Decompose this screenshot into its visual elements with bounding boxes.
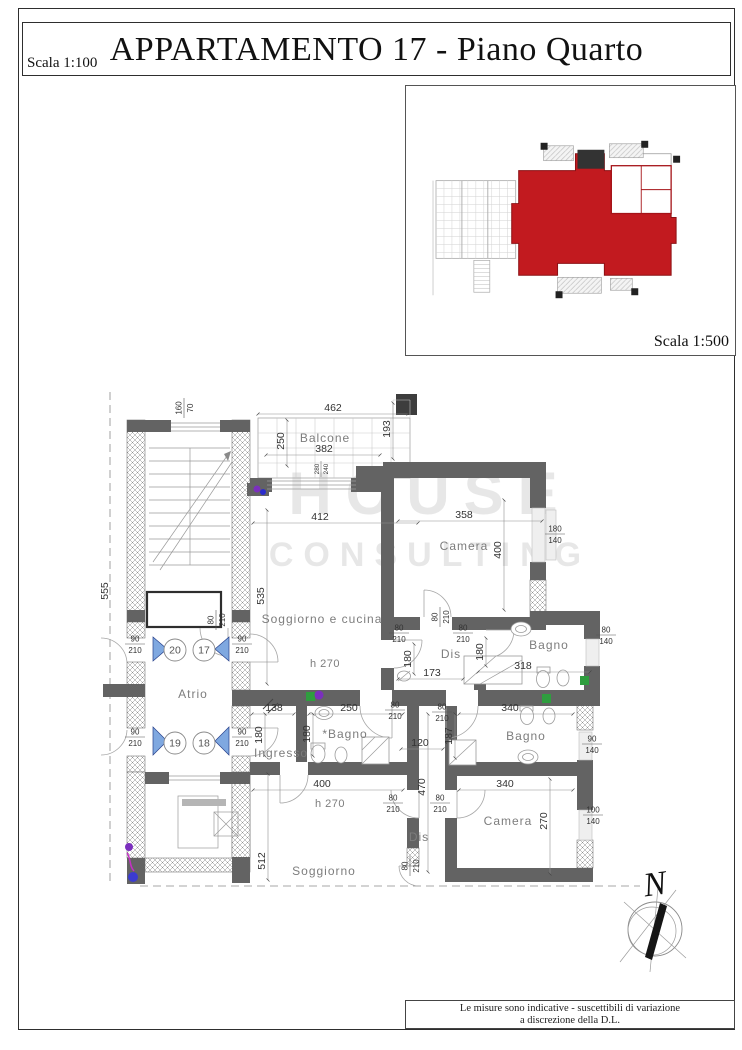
svg-text:80: 80 xyxy=(395,624,404,633)
dimension-label: 173 xyxy=(423,667,441,679)
dimension-fraction-label: 280240 xyxy=(314,461,330,477)
svg-text:210: 210 xyxy=(388,712,402,721)
dimension-label: 270 xyxy=(538,812,550,830)
dimension-label: 535 xyxy=(255,587,267,605)
svg-text:80: 80 xyxy=(401,861,410,870)
svg-text:17: 17 xyxy=(198,645,210,657)
dimension-label: 138 xyxy=(265,702,283,714)
svg-text:80: 80 xyxy=(391,701,400,710)
svg-text:80: 80 xyxy=(602,626,611,635)
dimension-label: 193 xyxy=(381,420,393,438)
svg-text:210: 210 xyxy=(412,859,421,873)
svg-text:20: 20 xyxy=(169,645,181,657)
dimension-label: 358 xyxy=(455,509,473,521)
room-label: Bagno xyxy=(529,638,569,652)
stairs xyxy=(147,448,232,627)
svg-text:90: 90 xyxy=(588,735,597,744)
dimension-label: 340 xyxy=(496,778,514,790)
room-label: Atrio xyxy=(178,687,208,701)
door-number-badge: 19 xyxy=(164,732,186,754)
svg-text:280: 280 xyxy=(314,463,321,474)
svg-text:210: 210 xyxy=(456,635,470,644)
north-label: N xyxy=(640,864,671,904)
room-label: Ingresso xyxy=(254,746,308,760)
svg-text:80: 80 xyxy=(431,612,440,621)
svg-text:210: 210 xyxy=(128,646,142,655)
note-line-1: Le misure sono indicative - suscettibili… xyxy=(406,1003,734,1015)
dimension-label: 250 xyxy=(275,432,287,450)
svg-text:210: 210 xyxy=(235,646,249,655)
dimension-fraction-label: 90210 xyxy=(232,728,252,749)
dimension-label: 412 xyxy=(311,511,329,523)
svg-text:140: 140 xyxy=(599,637,613,646)
svg-text:160: 160 xyxy=(175,401,184,415)
dimension-label: 120 xyxy=(411,737,429,749)
door-leaf-marker xyxy=(215,727,229,755)
drawing-sheet: APPARTAMENTO 17 - Piano Quarto Scala 1:1… xyxy=(0,0,742,1050)
svg-text:80: 80 xyxy=(207,615,216,624)
svg-text:80: 80 xyxy=(389,794,398,803)
svg-text:210: 210 xyxy=(442,610,451,624)
dimension-label: 187 xyxy=(443,727,455,745)
room-label: Bagno xyxy=(506,729,546,743)
room-label: h 270 xyxy=(310,658,340,670)
room-label: Soggiorno xyxy=(292,864,356,878)
room-label: *Bagno xyxy=(322,727,367,741)
dimension-fraction-label: 90210 xyxy=(125,728,145,749)
dimension-label: 382 xyxy=(315,443,333,455)
dimension-label: 318 xyxy=(514,660,532,672)
door-leaf-marker xyxy=(215,637,229,661)
svg-text:210: 210 xyxy=(235,739,249,748)
dimension-label: 340 xyxy=(501,702,519,714)
dimension-fraction-label: 80210 xyxy=(430,794,450,815)
dimension-label: 250 xyxy=(340,702,358,714)
svg-text:80: 80 xyxy=(436,794,445,803)
dimension-label: 512 xyxy=(256,852,268,870)
note-box: Le misure sono indicative - suscettibili… xyxy=(405,1000,735,1029)
svg-text:140: 140 xyxy=(585,746,599,755)
svg-text:210: 210 xyxy=(386,805,400,814)
dimension-label: 180 xyxy=(253,726,265,744)
svg-text:210: 210 xyxy=(128,739,142,748)
svg-text:18: 18 xyxy=(198,738,210,750)
dimension-label: 462 xyxy=(324,402,342,414)
room-label: Camera xyxy=(440,539,489,553)
pillar xyxy=(396,394,417,415)
svg-text:19: 19 xyxy=(169,738,181,750)
door-number-badge: 18 xyxy=(193,732,215,754)
svg-text:80: 80 xyxy=(459,624,468,633)
svg-text:90: 90 xyxy=(238,728,247,737)
door-number-badge: 20 xyxy=(164,639,186,661)
door-number-badge: 17 xyxy=(193,639,215,661)
svg-text:240: 240 xyxy=(323,463,330,474)
room-label: Soggiorno e cucina xyxy=(262,612,383,626)
dimension-label: 400 xyxy=(313,778,331,790)
dimension-fraction-label: 16070 xyxy=(175,398,196,418)
svg-text:140: 140 xyxy=(548,536,562,545)
svg-text:90: 90 xyxy=(131,728,140,737)
dimension-label: 555 xyxy=(99,582,111,600)
svg-text:210: 210 xyxy=(218,613,227,627)
svg-text:90: 90 xyxy=(131,635,140,644)
svg-text:80: 80 xyxy=(438,703,447,712)
svg-text:140: 140 xyxy=(586,817,600,826)
dimension-fraction-label: 80210 xyxy=(431,607,452,627)
room-label: Dis xyxy=(441,647,461,661)
north-compass: N xyxy=(620,864,686,972)
note-line-2: a discrezione della D.L. xyxy=(406,1015,734,1027)
dimension-label: 180 xyxy=(301,725,313,743)
dimension-label: 400 xyxy=(492,541,504,559)
room-label: Dis xyxy=(409,830,429,844)
svg-text:90: 90 xyxy=(238,635,247,644)
dimension-label: 180 xyxy=(402,650,414,668)
svg-text:100: 100 xyxy=(586,806,600,815)
svg-text:70: 70 xyxy=(186,403,195,412)
svg-text:210: 210 xyxy=(435,714,449,723)
svg-text:210: 210 xyxy=(392,635,406,644)
dimension-label: 470 xyxy=(416,778,428,796)
room-label: h 270 xyxy=(315,798,345,810)
svg-text:210: 210 xyxy=(433,805,447,814)
elevator xyxy=(178,796,238,848)
svg-text:180: 180 xyxy=(548,525,562,534)
floor-plan-svg: BalconeCameraSoggiorno e cucinaAtrioBagn… xyxy=(0,0,742,1050)
dimension-label: 180 xyxy=(474,643,486,661)
room-label: Camera xyxy=(484,814,533,828)
